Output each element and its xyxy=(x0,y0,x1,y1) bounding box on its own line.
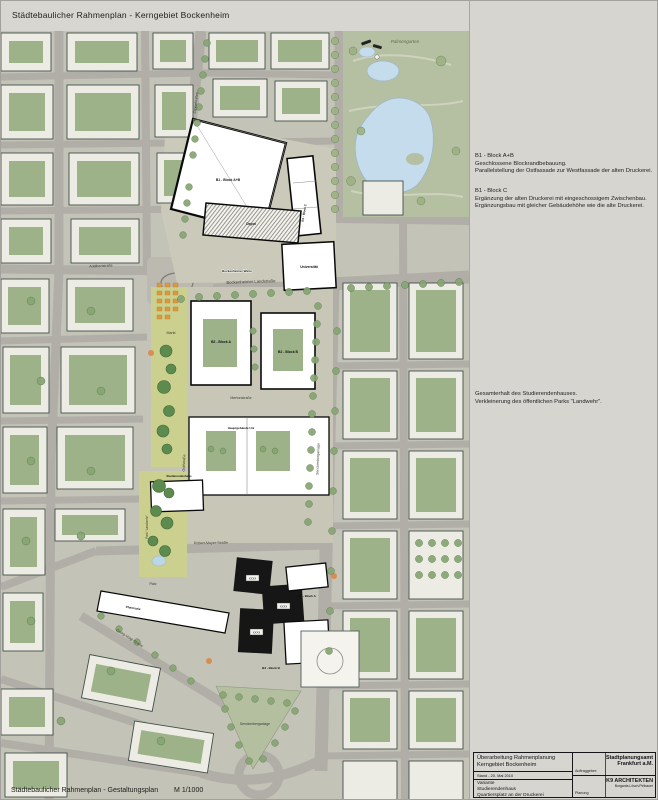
tower-label-1: XXXX xyxy=(249,577,257,581)
plan-sheet: Städtebaulicher Rahmenplan - Kerngebiet … xyxy=(0,0,658,800)
label-b3-block-b: B3 - Block B xyxy=(262,666,281,670)
label-b2-block-b: B2 - Block B xyxy=(278,350,299,354)
label-senckenberganlage-area: Senckenberganlage xyxy=(240,722,270,726)
label-hauptgebaeude-uni: Hauptgebäude Uni xyxy=(228,426,255,430)
project-line1: Überarbeitung Rahmenplanung xyxy=(477,755,572,762)
label-b3-block-a: B3 - Block A xyxy=(298,594,316,598)
note-line: Parallelstellung der Ostfassade zur West… xyxy=(475,168,657,176)
sheet-title-left: Städtebaulicher Rahmenplan - Kerngebiet … xyxy=(12,10,229,20)
label-studierendenhaus: Studierendenhaus xyxy=(166,474,192,478)
label-mertonstrasse: Mertonstraße xyxy=(230,396,251,400)
title-block: Überarbeitung Rahmenplanung Kerngebiet B… xyxy=(473,752,656,798)
label-park-landwehr: Park "Landwehr" xyxy=(145,515,149,539)
label-adalbertstrasse: Adalbertstraße xyxy=(89,264,113,269)
palmengarten-park xyxy=(343,31,469,217)
title-block-parties: Auftraggeber: Stadtplanungsamt Frankfurt… xyxy=(573,753,655,797)
note-title: B1 - Block C xyxy=(475,188,657,196)
label-platz: Platz xyxy=(149,582,156,586)
note-studierendenhaus: Gesamterhalt des Studierendenhauses. Ver… xyxy=(475,391,657,406)
note-b1-block-ab: B1 - Block A+B Geschlossene Blockrandbeb… xyxy=(475,153,657,176)
client-label: Auftraggeber: xyxy=(573,753,606,775)
note-line: Gesamterhalt des Studierendenhauses. xyxy=(475,391,657,399)
title-block-project: Überarbeitung Rahmenplanung Kerngebiet B… xyxy=(474,753,573,797)
label-palmengarten: Palmengarten xyxy=(391,39,420,44)
label-b2-block-a: B2 - Block A xyxy=(211,340,231,344)
special-building xyxy=(301,631,359,687)
label-robert-mayer-strasse: Robert-Mayer-Straße xyxy=(194,541,228,546)
note-line: Geschlossene Blockrandbebauung. xyxy=(475,161,657,169)
note-title: B1 - Block A+B xyxy=(475,153,657,161)
project-line2: Kerngebiet Bockenheim xyxy=(477,762,572,769)
city-plan-map: text{font-family:"Liberation Sans",sans-… xyxy=(1,31,469,800)
label-graefstrasse: Gräfstraße xyxy=(182,454,187,471)
label-depot: Depot xyxy=(246,222,256,226)
map-caption: Städtebaulicher Rahmenplan - Gestaltungs… xyxy=(11,787,203,794)
variant-line3: Quartiersplatz an der Druckerei xyxy=(477,793,572,799)
note-line: Ergänzungsbau mit gleicher Gebäudehöhe w… xyxy=(475,203,657,211)
label-markt: Markt xyxy=(167,331,176,335)
tower-label-3: XXXX xyxy=(253,631,261,635)
tower-label-2: XXXX xyxy=(280,605,288,609)
planner-row: Planung K9 ARCHITEKTEN Borgards.Lösch.Pi… xyxy=(573,776,655,798)
label-universitaet: Universität xyxy=(300,265,318,269)
label-bockenheimer-warte: Bockenheimer Warte xyxy=(222,269,252,273)
caption-scale: M 1/1000 xyxy=(174,787,203,794)
map-svg: text{font-family:"Liberation Sans",sans-… xyxy=(1,31,469,800)
note-line: Verkleinerung des öffentlichen Parks "La… xyxy=(475,399,657,407)
notes-sidebar: B1 - Block A+B Geschlossene Blockrandbeb… xyxy=(469,1,658,800)
client-name-2: Frankfurt a.M. xyxy=(606,761,653,767)
label-b1-block-ab: B1 - Block A+B xyxy=(216,178,241,182)
client-row: Auftraggeber: Stadtplanungsamt Frankfurt… xyxy=(573,753,655,776)
planner-label: Planung xyxy=(573,776,606,798)
caption-text: Städtebaulicher Rahmenplan - Gestaltungs… xyxy=(11,787,158,794)
plan-date: Stand - 20. Mai 2010 xyxy=(474,771,572,780)
planner-name: K9 ARCHITEKTEN xyxy=(606,778,653,784)
note-b1-block-c: B1 - Block C Ergänzung der alten Drucker… xyxy=(475,188,657,211)
planner-partners: Borgards.Lösch.Piribauer xyxy=(606,784,653,788)
note-line: Ergänzung der alten Druckerei mit einges… xyxy=(475,196,657,204)
